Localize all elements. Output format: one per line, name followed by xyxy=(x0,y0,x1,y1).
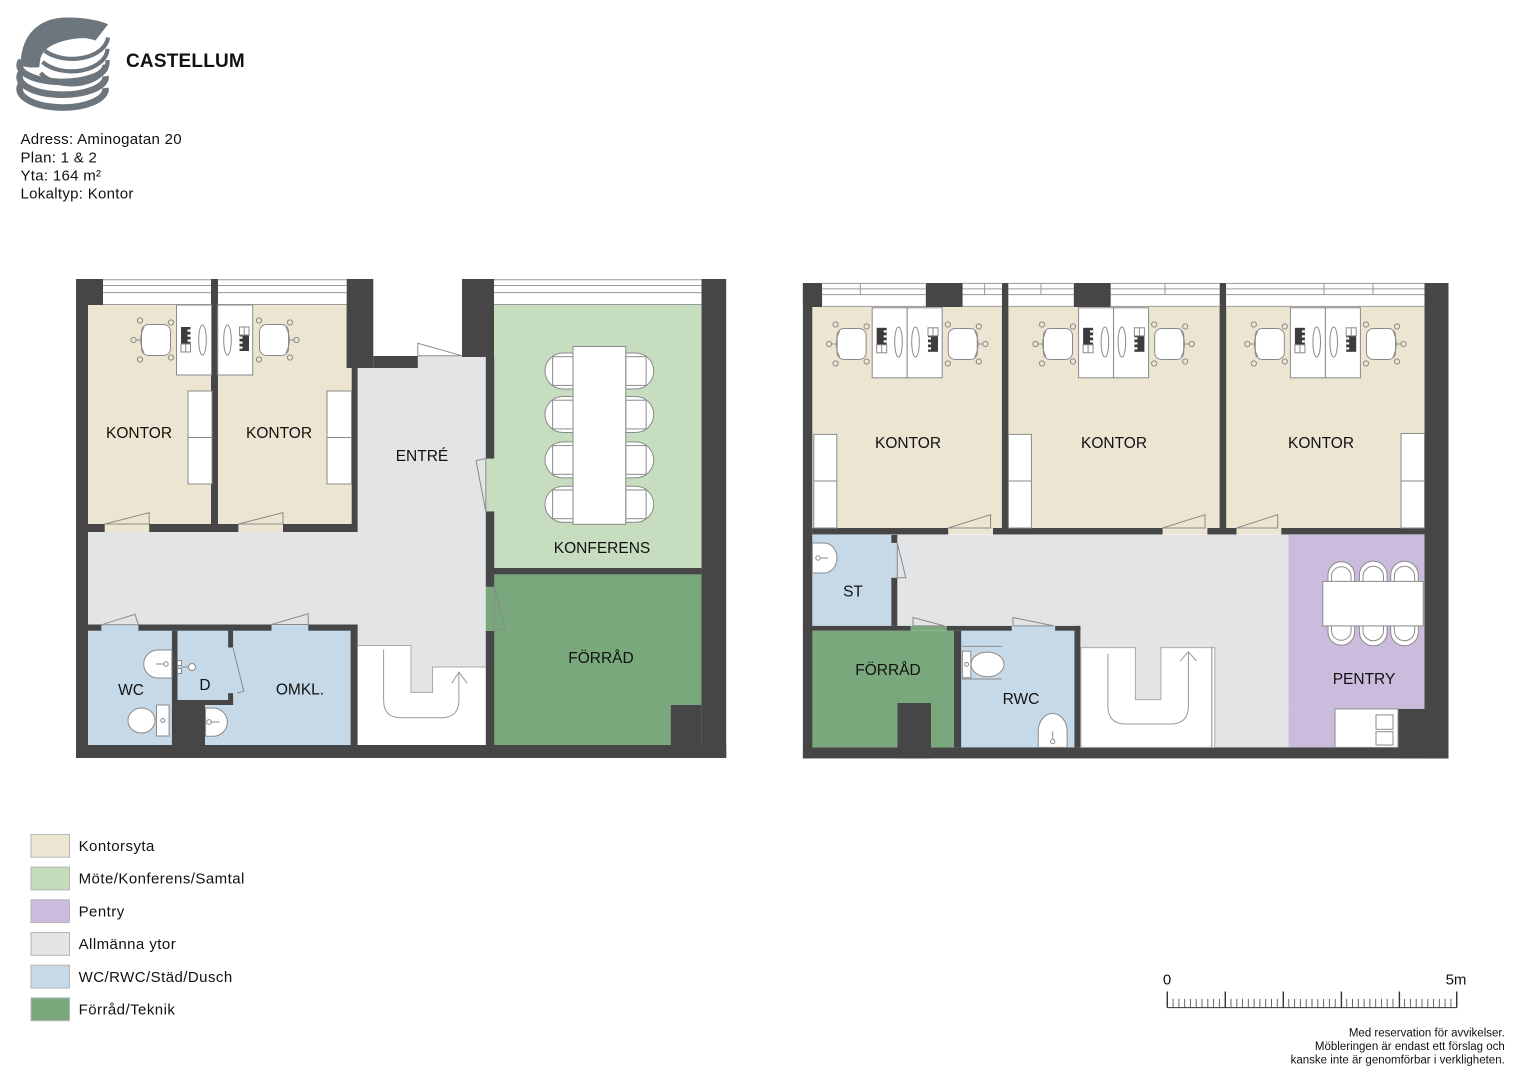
svg-text:OMKL.: OMKL. xyxy=(276,682,324,699)
svg-text:WC: WC xyxy=(118,682,144,699)
svg-text:Förråd/Teknik: Förråd/Teknik xyxy=(79,1002,176,1019)
svg-text:CASTELLUM: CASTELLUM xyxy=(126,51,245,72)
svg-text:ST: ST xyxy=(843,584,863,601)
svg-text:D: D xyxy=(199,677,210,694)
svg-text:0: 0 xyxy=(1163,972,1171,989)
svg-text:KONFERENS: KONFERENS xyxy=(554,540,650,557)
svg-text:WC/RWC/Städ/Dusch: WC/RWC/Städ/Dusch xyxy=(79,969,233,986)
svg-text:FÖRRÅD: FÖRRÅD xyxy=(855,661,920,679)
svg-text:RWC: RWC xyxy=(1003,691,1040,708)
svg-text:FÖRRÅD: FÖRRÅD xyxy=(568,649,633,667)
svg-text:kanske inte är genomförbar i v: kanske inte är genomförbar i verklighete… xyxy=(1291,1055,1505,1067)
svg-text:Lokaltyp: Kontor: Lokaltyp: Kontor xyxy=(21,186,134,203)
svg-text:ENTRÉ: ENTRÉ xyxy=(396,448,449,465)
svg-text:Plan: 1 & 2: Plan: 1 & 2 xyxy=(21,149,98,166)
svg-text:KONTOR: KONTOR xyxy=(1081,435,1147,452)
svg-text:KONTOR: KONTOR xyxy=(106,425,172,442)
svg-text:PENTRY: PENTRY xyxy=(1333,671,1396,688)
svg-text:Pentry: Pentry xyxy=(79,903,125,920)
svg-text:Yta: 164 m²: Yta: 164 m² xyxy=(21,167,102,184)
svg-text:Möte/Konferens/Samtal: Möte/Konferens/Samtal xyxy=(79,871,245,888)
svg-text:KONTOR: KONTOR xyxy=(875,435,941,452)
svg-text:KONTOR: KONTOR xyxy=(1288,435,1354,452)
svg-text:5m: 5m xyxy=(1446,972,1467,989)
svg-text:Adress: Aminogatan 20: Adress: Aminogatan 20 xyxy=(21,131,182,148)
svg-text:KONTOR: KONTOR xyxy=(246,425,312,442)
svg-text:Kontorsyta: Kontorsyta xyxy=(79,838,155,855)
svg-text:Allmänna ytor: Allmänna ytor xyxy=(79,936,177,953)
svg-text:Med reservation för avvikelser: Med reservation för avvikelser. xyxy=(1349,1028,1505,1040)
svg-text:Möbleringen är endast ett förs: Möbleringen är endast ett förslag och xyxy=(1315,1041,1505,1053)
